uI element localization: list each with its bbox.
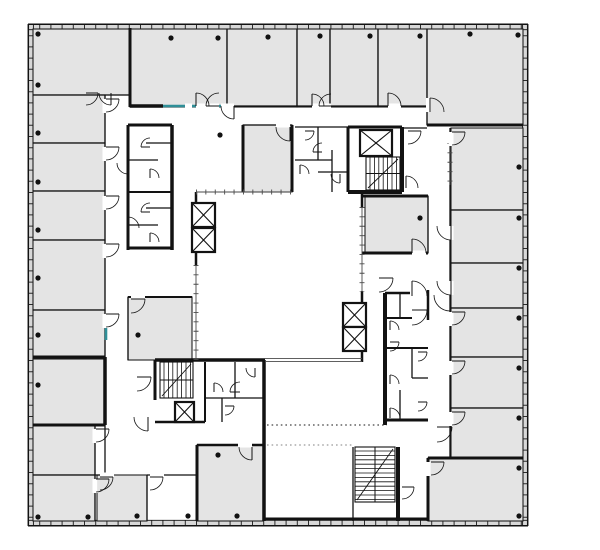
elevator-icon <box>192 203 215 227</box>
room <box>33 310 105 359</box>
door-swing <box>150 233 159 242</box>
room <box>378 29 427 107</box>
door-swing <box>128 217 139 228</box>
ceiling-dot <box>265 34 270 39</box>
door-arc <box>150 477 163 490</box>
door-arc <box>96 429 109 442</box>
ceiling-dot <box>35 31 40 36</box>
room <box>451 210 523 263</box>
door-arc <box>412 281 427 296</box>
door-arc <box>128 217 139 228</box>
room <box>33 191 105 240</box>
ceiling-dot <box>35 82 40 87</box>
ceiling-dot <box>35 332 40 337</box>
door-swing <box>402 487 414 499</box>
door-arc <box>246 368 255 377</box>
door-arc <box>390 375 399 384</box>
door-swing <box>137 377 151 391</box>
room <box>130 29 227 107</box>
door-arc <box>106 196 119 209</box>
ceiling-dot <box>516 215 521 220</box>
door-swing <box>418 402 427 411</box>
stair-icon <box>366 157 400 190</box>
door-swing <box>434 295 450 311</box>
wall-opening <box>449 312 454 326</box>
door-arc <box>106 244 119 257</box>
door-swing <box>106 99 119 112</box>
wall-opening <box>93 429 98 443</box>
door-swing <box>106 244 119 257</box>
ceiling-dot <box>85 514 90 519</box>
room <box>330 29 378 107</box>
room <box>128 297 192 360</box>
door-swing <box>300 165 309 174</box>
ceiling-dot <box>35 382 40 387</box>
wall-opening <box>221 104 234 109</box>
ceiling-dot <box>35 130 40 135</box>
door-arc <box>418 402 427 411</box>
room <box>33 475 95 521</box>
ceiling-dot <box>516 415 521 420</box>
ceiling-dot <box>134 513 139 518</box>
door-swing <box>246 368 255 377</box>
room <box>197 445 263 521</box>
ceiling-dot <box>417 215 422 220</box>
door-swing <box>134 417 148 431</box>
wall-opening <box>93 479 98 493</box>
room <box>33 29 130 95</box>
stair-icon <box>355 447 395 502</box>
room <box>33 143 105 191</box>
door-arc <box>406 176 418 188</box>
door-arc <box>408 131 421 144</box>
room <box>451 357 523 408</box>
door-arc <box>434 295 450 311</box>
ceiling-dot <box>317 33 322 38</box>
ceiling-dot <box>515 32 520 37</box>
door-swing <box>106 147 119 160</box>
wall-opening <box>412 251 426 256</box>
ceiling-dot <box>168 35 173 40</box>
door-swing <box>418 352 427 361</box>
elevator-icon <box>175 402 194 422</box>
wall-opening <box>103 99 108 113</box>
ceiling-dot <box>215 35 220 40</box>
ceiling-dot <box>185 513 190 518</box>
wall-opening <box>103 196 108 210</box>
door-arc <box>390 408 400 418</box>
room <box>97 475 147 521</box>
ceiling-dot <box>35 179 40 184</box>
ceiling-dot <box>516 265 521 270</box>
door-swing <box>117 163 128 174</box>
wall-opening <box>276 123 290 128</box>
door-arc <box>390 321 399 330</box>
wall-opening <box>449 132 454 146</box>
door-swing <box>96 429 109 442</box>
wall-opening <box>238 443 252 448</box>
room <box>365 196 428 253</box>
door-swing <box>214 383 223 392</box>
door-swing <box>390 408 400 418</box>
elevator-icon <box>343 327 366 351</box>
door-arc <box>137 377 151 391</box>
elevator-icon <box>343 303 366 327</box>
door-arc <box>150 233 159 242</box>
room <box>33 359 105 425</box>
floor-plan-canvas <box>0 0 600 550</box>
room <box>451 408 523 458</box>
door-swing <box>412 281 427 296</box>
ceiling-dot <box>417 33 422 38</box>
door-swing <box>150 477 163 490</box>
door-arc <box>379 278 393 292</box>
door-swing <box>390 342 399 351</box>
elevator-icon <box>360 130 392 156</box>
room <box>33 240 105 310</box>
stair-icon <box>160 362 193 398</box>
door-swing <box>390 375 399 384</box>
ceiling-dot <box>234 513 239 518</box>
door-arc <box>150 169 159 178</box>
door-arc <box>117 163 128 174</box>
door-swing <box>150 169 159 178</box>
ceiling-dot <box>516 164 521 169</box>
guide-lines-layer <box>267 425 387 445</box>
ceiling-dot <box>516 315 521 320</box>
door-arc <box>134 417 148 431</box>
door-arc <box>390 342 399 351</box>
ceiling-dot <box>135 332 140 337</box>
room <box>227 29 297 107</box>
wall-opening <box>449 361 454 375</box>
ceiling-dot <box>367 33 372 38</box>
wall-opening <box>449 412 454 426</box>
door-arc <box>402 487 414 499</box>
wall-opening <box>426 462 431 476</box>
room <box>427 29 523 125</box>
room <box>428 458 523 521</box>
room <box>451 308 523 357</box>
wall-opening <box>103 314 108 328</box>
ceiling-dot <box>35 275 40 280</box>
door-arc <box>305 131 314 140</box>
ceiling-dot <box>217 132 222 137</box>
door-swing <box>305 131 314 140</box>
wall-opening <box>103 147 108 161</box>
door-arc <box>106 99 119 112</box>
wall-opening <box>388 104 401 109</box>
ceiling-dot <box>516 513 521 518</box>
room <box>451 263 523 308</box>
door-swing <box>390 321 399 330</box>
door-arc <box>106 147 119 160</box>
door-swing <box>106 314 119 327</box>
door-swing <box>406 176 418 188</box>
room <box>243 125 292 192</box>
door-arc <box>300 165 309 174</box>
door-swing <box>106 196 119 209</box>
ceiling-dot <box>516 465 521 470</box>
ceiling-dot <box>467 31 472 36</box>
door-swing <box>408 131 421 144</box>
ceiling-dot <box>35 514 40 519</box>
door-arc <box>225 406 234 415</box>
door-swing <box>225 406 234 415</box>
door-arc <box>412 310 427 325</box>
door-arc <box>214 383 223 392</box>
floor-plan-page <box>0 0 600 550</box>
wall-opening <box>185 104 192 109</box>
room <box>33 425 95 475</box>
ceiling-dot <box>215 452 220 457</box>
elevator-icon <box>192 228 215 252</box>
wall-opening <box>103 244 108 258</box>
ceiling-dot <box>35 227 40 232</box>
ceiling-dot <box>516 365 521 370</box>
door-arc <box>418 352 427 361</box>
door-swing <box>412 310 427 325</box>
door-swing <box>379 278 393 292</box>
door-arc <box>106 314 119 327</box>
